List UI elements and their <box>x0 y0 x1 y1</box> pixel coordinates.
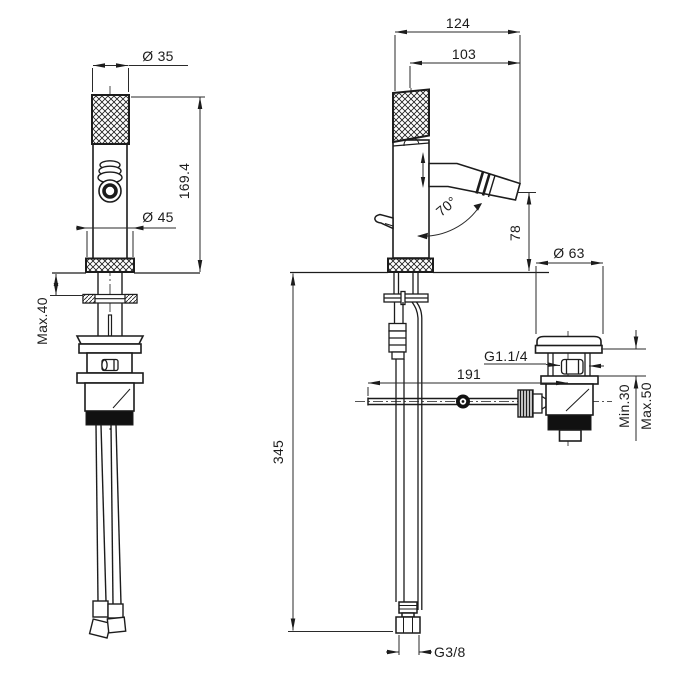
label-deck-max40: Max.40 <box>34 297 50 345</box>
drain-side <box>536 331 603 446</box>
label-dia-35: Ø 35 <box>142 48 174 64</box>
popup-rod-front <box>109 315 112 336</box>
drain-cap <box>537 337 601 346</box>
label-reach-103: 103 <box>452 46 476 62</box>
rod-knurled-connector <box>518 390 533 417</box>
label-angle-70: 70° <box>433 193 460 219</box>
dim-deck-max40 <box>50 274 83 296</box>
technical-drawing: Ø 35 169.4 Ø 45 Max.40 124 103 70° 78 Ø … <box>0 0 700 700</box>
label-waste-thread: G1.1/4 <box>484 348 528 364</box>
spout <box>429 164 520 201</box>
base-nut-front <box>86 259 134 273</box>
side-view <box>290 88 612 633</box>
mounting-washer-front <box>83 295 137 304</box>
label-rod-191: 191 <box>457 366 481 382</box>
dim-hose-345 <box>288 274 393 632</box>
popup-pivot-side <box>562 360 584 375</box>
label-counter-max50: Max.50 <box>638 382 654 430</box>
label-hose-345: 345 <box>270 440 286 464</box>
hose-rear-side <box>412 302 422 610</box>
label-dia-63: Ø 63 <box>553 245 585 261</box>
lever-handle-side <box>375 215 393 229</box>
label-supply-thread: G3/8 <box>434 644 466 660</box>
knurled-handle-side <box>393 90 429 143</box>
drain-front <box>77 336 143 425</box>
base-nut-side <box>388 259 433 273</box>
dim-height-169 <box>131 97 205 272</box>
shank-side <box>384 272 428 305</box>
handle-knob-front <box>98 161 122 202</box>
label-dia-45: Ø 45 <box>142 209 174 225</box>
dim-supply-thread <box>386 635 432 655</box>
dim-waste-thread <box>484 364 604 366</box>
drain-gasket-side <box>548 415 591 430</box>
dim-reach-103 <box>410 63 520 88</box>
knurled-handle-front <box>92 95 129 144</box>
drawing-canvas: Ø 35 169.4 Ø 45 Max.40 124 103 70° 78 Ø … <box>0 0 700 700</box>
hose-front-side <box>389 302 406 602</box>
drain-gasket-front <box>86 411 133 425</box>
label-depth-124: 124 <box>446 15 470 31</box>
dim-dia-35 <box>93 66 189 93</box>
supply-nut-side <box>396 602 420 633</box>
popup-pivot-front <box>102 360 118 371</box>
supply-hoses-front <box>90 425 126 638</box>
label-height-78: 78 <box>507 225 523 241</box>
label-counter-min30: Min.30 <box>616 384 632 428</box>
dim-dia-63 <box>536 263 603 334</box>
label-height-169: 169.4 <box>176 163 192 200</box>
